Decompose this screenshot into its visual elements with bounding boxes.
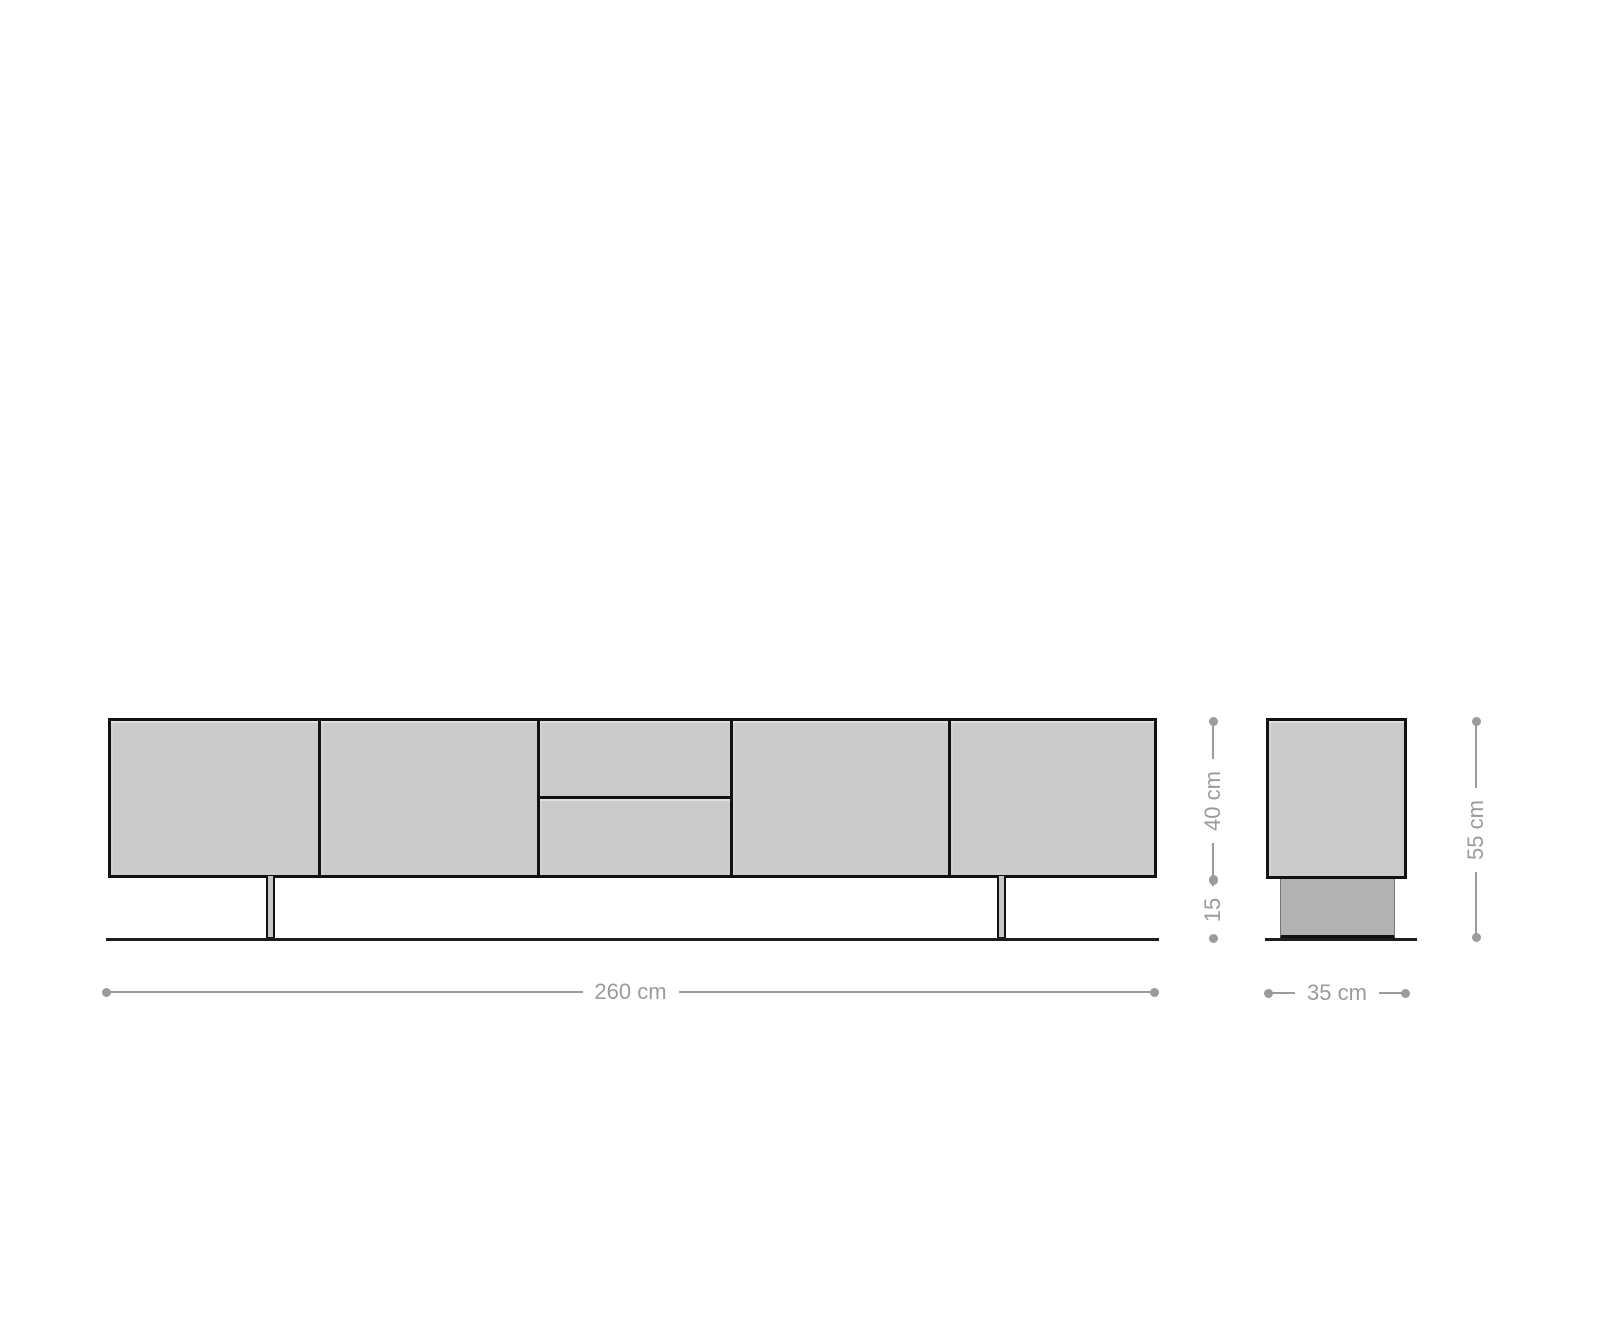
dimension-endpoint-dot: [1401, 989, 1410, 998]
dimension-endpoint-dot: [1150, 988, 1159, 997]
drawer-panel-top: [540, 721, 730, 796]
door-panel-right-outer: [951, 721, 1154, 875]
dimension-total-height-label: 55 cm: [1463, 788, 1489, 872]
dimension-body-height: 40 cm: [1200, 717, 1226, 884]
leg-right: [997, 876, 1006, 940]
dimension-endpoint-dot: [1472, 933, 1481, 942]
front-view-panels: [111, 721, 1154, 875]
door-panel-left-outer: [111, 721, 318, 875]
dimension-endpoint-dot: [1209, 934, 1218, 943]
leg-left: [266, 876, 275, 940]
drawer-panel-bottom: [540, 799, 730, 875]
door-panel-right-inner: [733, 721, 948, 875]
dimension-depth: 35 cm: [1264, 983, 1410, 1003]
dimension-width: 260 cm: [102, 982, 1159, 1002]
side-view-cabinet: [1266, 718, 1407, 879]
front-view-cabinet: [108, 718, 1157, 878]
door-panel-left-inner: [321, 721, 537, 875]
dimension-base-height: 15: [1200, 876, 1226, 943]
floor-line-front: [106, 938, 1159, 941]
dimension-width-label: 260 cm: [582, 979, 678, 1005]
floor-line-side: [1265, 938, 1417, 941]
dimension-drawing: 260 cm 40 cm 15 55 cm 35 cm: [0, 0, 1600, 1333]
dimension-total-height: 55 cm: [1463, 717, 1489, 942]
side-view-plinth: [1280, 879, 1395, 939]
dimension-body-height-label: 40 cm: [1200, 759, 1226, 843]
dimension-base-height-label: 15: [1200, 885, 1226, 933]
side-panel: [1269, 721, 1404, 876]
dimension-depth-label: 35 cm: [1295, 980, 1379, 1006]
